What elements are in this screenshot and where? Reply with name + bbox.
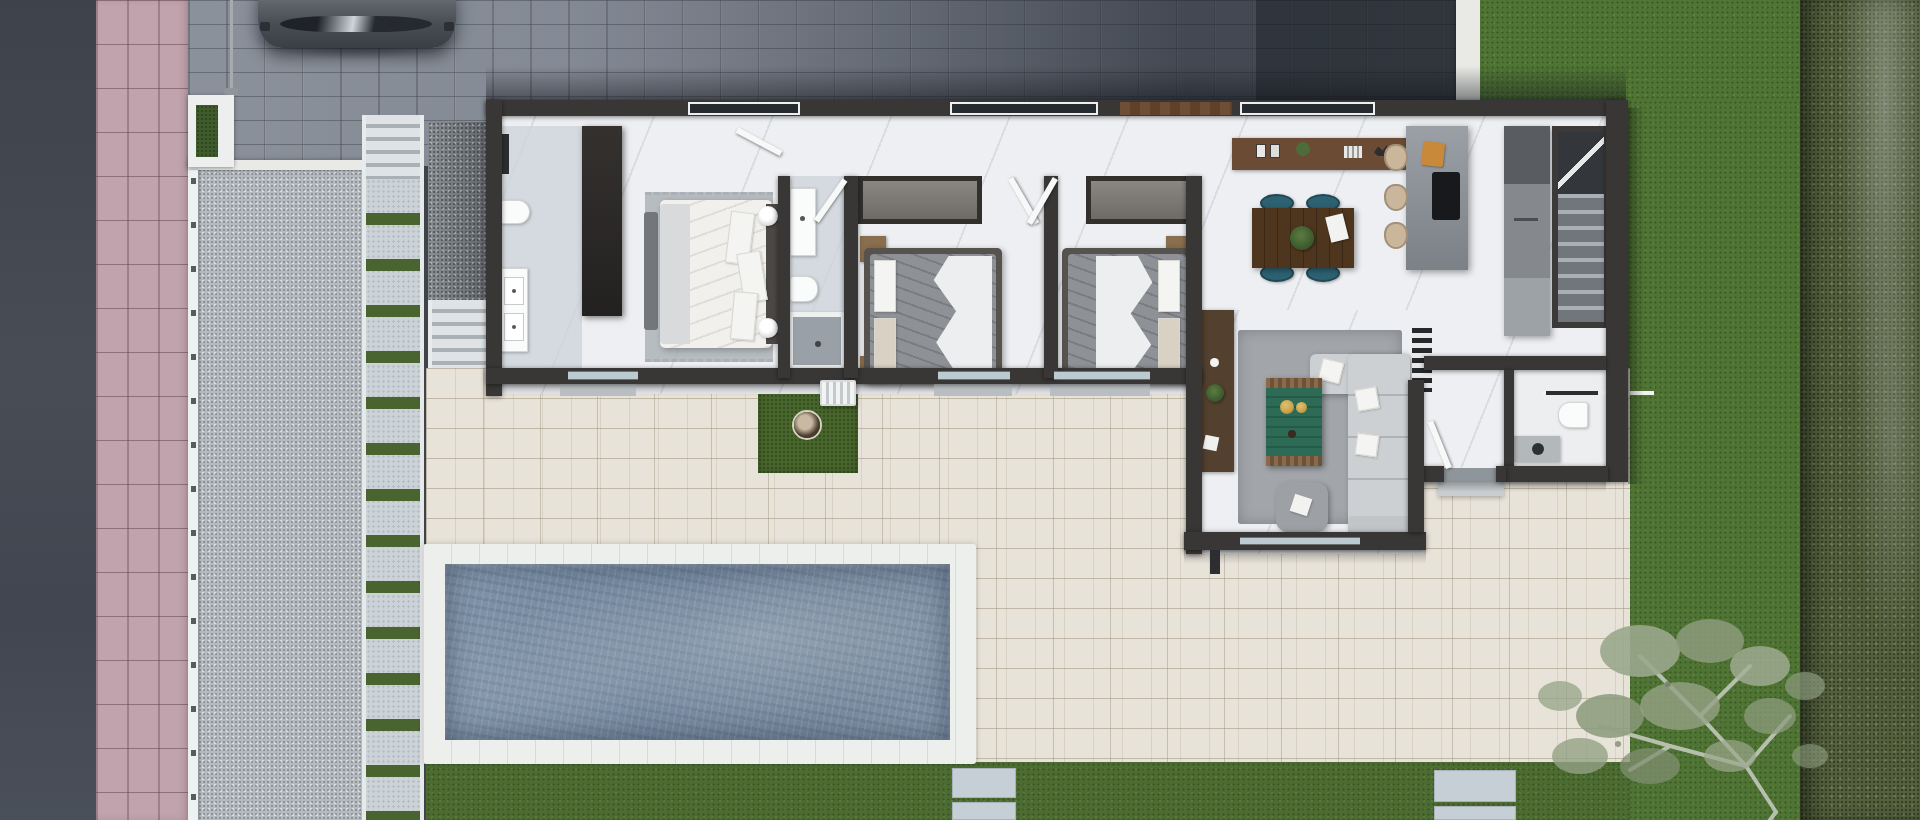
bedroom3-east-wall [1186, 176, 1202, 554]
counter-handle [1514, 218, 1538, 221]
living-glass-slider [1240, 537, 1360, 545]
sliding-door [568, 371, 638, 380]
car-mirror-right [444, 22, 454, 31]
entry-south-wall-a [1424, 466, 1444, 482]
white-fence [188, 170, 198, 820]
bar-stool [1384, 144, 1408, 171]
swimming-pool [445, 564, 950, 740]
sliding-door [1054, 371, 1150, 380]
faucet-dot [512, 325, 516, 329]
sliding-door [938, 371, 1010, 380]
coffee-table [1266, 378, 1322, 466]
decor-frame [1270, 144, 1280, 158]
bar-stool [1384, 222, 1408, 249]
stepping-stone [1434, 806, 1516, 820]
door-threshold [560, 384, 636, 396]
faucet-dot [512, 289, 516, 293]
coffee-table-trim [1266, 456, 1322, 466]
gold-bowl [1296, 402, 1307, 413]
master-bed-throw [660, 204, 690, 344]
console-plant [1206, 384, 1224, 402]
south-shadow [1184, 550, 1426, 564]
east-wall [1606, 100, 1628, 482]
pillow [730, 291, 758, 341]
door-threshold [1050, 384, 1150, 396]
console-vase [1210, 358, 1219, 367]
decor-books [1344, 146, 1362, 158]
entry-steps [362, 115, 424, 179]
round-sink [1532, 443, 1544, 455]
lamp-post [230, 0, 233, 92]
bar-stool [1384, 184, 1408, 211]
ottoman-pouf [1276, 482, 1328, 532]
tub-drain [815, 341, 821, 347]
window [688, 102, 800, 115]
candle [1288, 430, 1296, 438]
console-decor-card [1203, 435, 1220, 452]
cutting-board [1421, 141, 1445, 167]
nightstand-lamp [758, 318, 778, 338]
pillow [874, 318, 896, 370]
pink-sidewalk [96, 0, 190, 820]
parked-car [258, 0, 456, 48]
pouf-cloth [1290, 494, 1313, 517]
south-shadow [1424, 482, 1606, 492]
bath2-west-wall [778, 176, 790, 378]
pillow [1158, 318, 1180, 370]
decor-plant-dot [1296, 142, 1310, 156]
car-windshield [280, 16, 432, 32]
patio-wall-light [1210, 550, 1220, 574]
west-wall [486, 100, 502, 396]
living-west-wall [1408, 380, 1424, 532]
bedroom2-closet [858, 176, 982, 224]
window [950, 102, 1098, 115]
lamp-post-head [224, 88, 238, 95]
side-gravel-path [428, 122, 490, 300]
stepping-stone [1434, 770, 1516, 802]
entry-north-wall [1424, 356, 1606, 370]
side-walkway [362, 179, 424, 820]
lower-cabinet [1504, 278, 1550, 336]
gold-bowl [1280, 400, 1294, 414]
entry-south-wall-b [1496, 466, 1506, 482]
bath2-counter [790, 188, 816, 256]
car-mirror-left [260, 22, 270, 31]
window [1240, 102, 1375, 115]
stepping-stone [952, 768, 1016, 798]
aerial-floor-plan-render [0, 0, 1920, 820]
master-vanity [498, 268, 528, 352]
stepping-stone [952, 802, 1016, 820]
fridge [1504, 126, 1550, 184]
master-toilet [500, 200, 530, 224]
bath2-faucet [800, 216, 805, 221]
master-wardrobe [582, 126, 622, 316]
kitchen-counter [1504, 126, 1550, 336]
east-shadow [1628, 108, 1644, 484]
master-bench [644, 212, 658, 330]
towel-bar [1546, 391, 1598, 395]
powder-south-wall [1504, 466, 1608, 482]
bathtub [788, 312, 846, 370]
gravel-front-yard [198, 168, 364, 820]
entry-doormat [1442, 468, 1498, 482]
cooktop [1432, 172, 1460, 220]
powder-west-wall [1504, 370, 1514, 470]
wood-fascia-band [1120, 102, 1232, 115]
hvac-unit [820, 380, 856, 406]
table-plant [1290, 226, 1314, 250]
bed2-bed3-wall [1044, 176, 1058, 378]
bedroom3-closet [1086, 176, 1200, 224]
staircase [1552, 126, 1610, 328]
patch-planter [794, 412, 820, 438]
sideboard [1232, 138, 1408, 170]
coffee-table-trim [1266, 378, 1322, 388]
bath2-toilet [790, 276, 818, 302]
garden-tree [1518, 594, 1848, 820]
planter-grass [196, 105, 218, 157]
nightstand-lamp [758, 206, 778, 226]
roof-shadow [486, 66, 1626, 102]
sofa-pillow [1355, 433, 1380, 458]
powder-vanity [1514, 436, 1560, 462]
door-threshold [934, 384, 1012, 396]
powder-toilet [1558, 402, 1588, 428]
sofa-pillow [1354, 386, 1379, 411]
pillow [874, 260, 896, 312]
bath2-east-wall [844, 176, 858, 378]
decor-frame [1256, 144, 1266, 158]
pillow [1158, 260, 1180, 312]
road [0, 0, 96, 820]
